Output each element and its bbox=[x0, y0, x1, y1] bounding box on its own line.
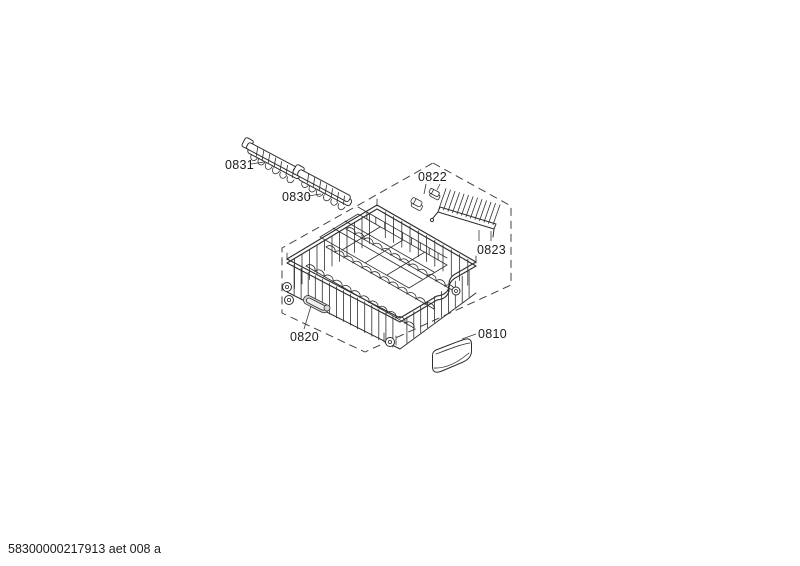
parts-diagram-page: 0831 0830 0822 0823 0820 0810 5830000021… bbox=[0, 0, 800, 566]
leader-0810 bbox=[462, 334, 476, 339]
doc-number: 58300000217913 aet 008 a bbox=[8, 542, 161, 556]
leader-0820 bbox=[304, 306, 311, 329]
tines bbox=[439, 189, 500, 225]
label-0831: 0831 bbox=[225, 158, 254, 172]
label-0810: 0810 bbox=[478, 327, 507, 341]
label-0830: 0830 bbox=[282, 190, 311, 204]
label-0822: 0822 bbox=[418, 170, 447, 184]
part-0823-folding-tine-rack bbox=[430, 189, 500, 237]
leader-0822-right bbox=[437, 184, 440, 190]
label-0823: 0823 bbox=[477, 243, 506, 257]
leader-0822-left bbox=[424, 184, 426, 194]
part-0810-handle-trim bbox=[433, 339, 472, 372]
exploded-parts-drawing: 0831 0830 0822 0823 0820 0810 5830000021… bbox=[0, 0, 800, 566]
label-0820: 0820 bbox=[290, 330, 319, 344]
part-0830-tine-row-insert bbox=[288, 164, 356, 213]
part-0822-clips bbox=[409, 188, 442, 211]
part-0820-lower-basket bbox=[283, 199, 477, 349]
